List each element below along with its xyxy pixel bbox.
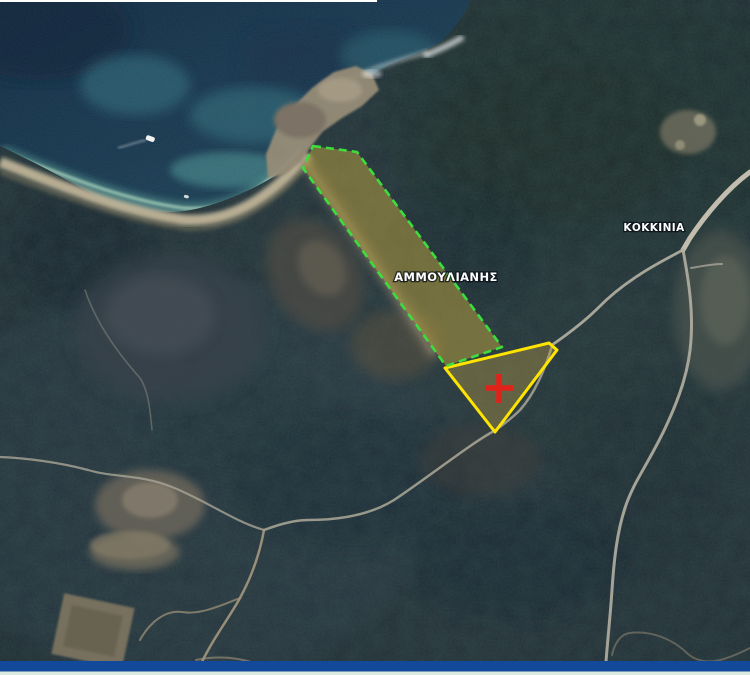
area-label-ammoulianis: ΑΜΜΟΥΛΙΑΝΗΣ bbox=[394, 270, 497, 284]
satellite-map-image: ΑΜΜΟΥΛΙΑΝΗΣ ΚΟΚΚΙΝΙΑ bbox=[0, 0, 750, 675]
top-white-strip bbox=[0, 0, 377, 2]
footer-strip bbox=[0, 672, 750, 675]
map-viewport: ΑΜΜΟΥΛΙΑΝΗΣ ΚΟΚΚΙΝΙΑ bbox=[0, 0, 750, 675]
area-label-kokkinia: ΚΟΚΚΙΝΙΑ bbox=[623, 222, 685, 234]
footer-bar bbox=[0, 661, 750, 672]
